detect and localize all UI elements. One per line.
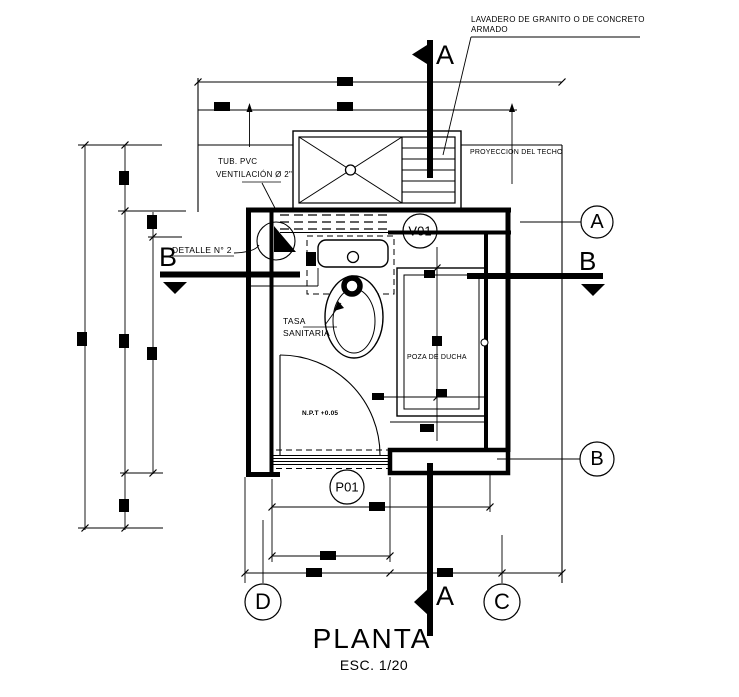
detail-note: DETALLE N° 2	[172, 246, 232, 255]
drawing-scale: ESC. 1/20	[340, 658, 408, 672]
lavadero-sink	[293, 131, 461, 209]
lavadero-note-line2: ARMADO	[471, 26, 508, 34]
lavadero-note-line1: LAVADERO DE GRANITO O DE CONCRETO	[471, 16, 645, 24]
floor-plan-drawing: LAVADERO DE GRANITO O DE CONCRETO ARMADO…	[0, 0, 739, 697]
plan-linework	[0, 0, 739, 697]
window-tag-v01: V01	[408, 225, 431, 238]
section-line-a-bottom	[414, 463, 433, 636]
leader-lines	[172, 37, 640, 327]
left-dimension-lines	[78, 145, 186, 530]
grid-bubble-a: A	[590, 212, 603, 232]
toilet-label-line1: TASA	[283, 317, 306, 326]
grid-bubble-c: C	[494, 591, 510, 613]
roof-projection-label: PROYECCION DEL TECHO	[470, 149, 563, 156]
window-v01-opening	[280, 215, 388, 233]
section-line-b-left	[160, 272, 300, 295]
vent-pipe-note-line1: TUB. PVC	[218, 158, 257, 166]
bottom-dimension-lines	[245, 475, 562, 583]
vent-pipe-note-line2: VENTILACIÓN Ø 2"	[216, 171, 292, 179]
shower-label: POZA DE DUCHA	[407, 354, 467, 361]
section-label-b-left: B	[159, 244, 177, 271]
section-label-a-bottom: A	[436, 583, 454, 610]
section-line-a-top	[412, 40, 433, 178]
toilet-label-line2: SANITARIA	[283, 329, 330, 338]
floor-level-label: N.P.T +0.05	[302, 411, 338, 418]
drawing-title: PLANTA	[313, 625, 432, 653]
door-tag-p01: P01	[335, 481, 358, 494]
grid-bubble-d: D	[255, 591, 271, 613]
detail-marker	[257, 222, 296, 260]
grid-bubble-b: B	[590, 449, 603, 469]
section-label-a-top: A	[436, 42, 454, 69]
top-dimension-lines	[198, 82, 562, 184]
section-label-b-right: B	[579, 248, 596, 274]
